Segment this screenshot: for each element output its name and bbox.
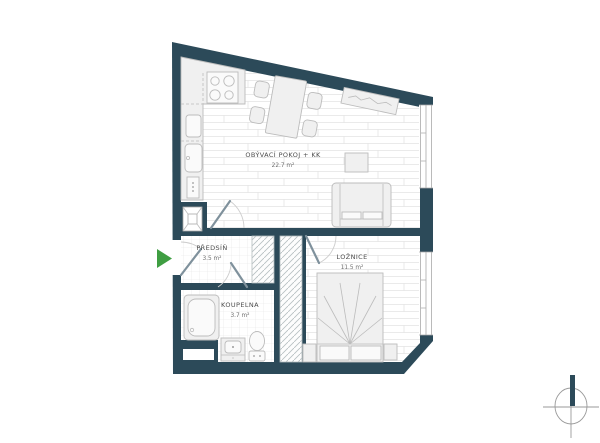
bedroom-window [419,252,433,335]
wall-niche [183,349,214,360]
floor-plan-canvas: OBÝVACÍ POKOJ + KK 22.7 m² LOŽNICE 11.5 … [0,0,600,443]
bedroom-area: 11.5 m² [341,264,364,271]
hallway-wardrobe [252,236,274,283]
bathroom-area: 3.7 m² [230,312,249,319]
stove-icon [207,72,238,103]
built-in-wardrobe [280,236,302,362]
hallway-label: PŘEDSÍŇ [196,243,227,252]
living-room-label: OBÝVACÍ POKOJ + KK [245,150,321,159]
entrance-door-opening [172,240,181,275]
living-room-window [419,105,433,188]
nightstand-left [303,344,316,362]
coffee-table [345,153,368,172]
nightstand-right [384,344,397,360]
washbasin-icon [221,338,245,361]
installation-shaft [178,202,207,236]
sofa [332,183,391,227]
toilet-icon [249,332,265,362]
bathtub-icon [184,295,219,340]
floor-plan: OBÝVACÍ POKOJ + KK 22.7 m² LOŽNICE 11.5 … [0,0,600,443]
entrance-arrow-icon [157,249,172,268]
hallway-area: 3.5 m² [202,255,221,262]
bathroom-label: KOUPELNA [221,301,259,309]
dishwasher-icon [187,177,199,198]
living-room-area: 22.7 m² [272,162,295,169]
north-compass-icon [543,375,599,438]
double-bed [317,273,383,362]
bedroom-label: LOŽNICE [336,252,367,261]
